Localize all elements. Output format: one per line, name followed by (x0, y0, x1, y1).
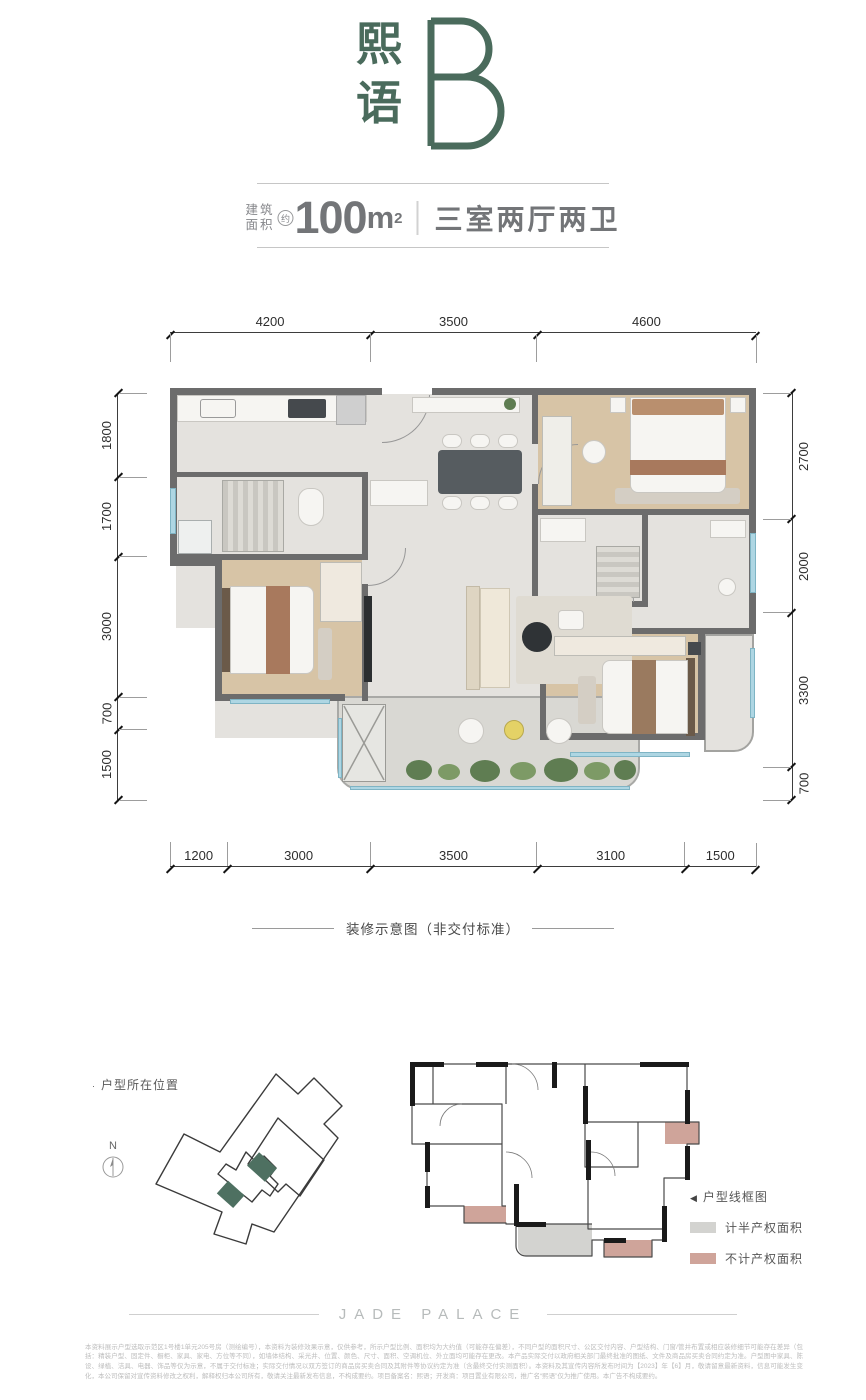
dim-extension (119, 800, 147, 801)
dining-chair (442, 496, 462, 510)
dim-left-5: 1500 (96, 730, 117, 800)
area-superscript: 2 (394, 211, 402, 226)
nightstand (610, 397, 626, 413)
dining-chair (498, 496, 518, 510)
nightstand (688, 642, 701, 655)
dim-left-1: 1800 (96, 393, 117, 477)
bath1-toilet (298, 488, 324, 526)
bedroom2-wardrobe (320, 562, 362, 622)
dim-left-2: 1700 (96, 477, 117, 557)
brand-line-right (547, 1314, 737, 1315)
area-value: 100 (294, 192, 366, 244)
bay-bottom-right (704, 634, 754, 752)
balcony-plant (510, 762, 536, 780)
kitchen-sink (200, 399, 236, 418)
kitchen-stove (288, 399, 326, 418)
bath2-vanity (540, 518, 586, 542)
dim-top-2: 3500 (370, 314, 537, 333)
wireframe-marker: ◀ (690, 1193, 698, 1203)
wall (170, 388, 177, 566)
window (170, 488, 176, 534)
wireframe-label-row: ◀户型线框图 (690, 1188, 803, 1205)
dim-extension (756, 335, 757, 363)
wall (432, 388, 756, 395)
bench (710, 520, 746, 538)
bedroom3-rug (578, 676, 596, 724)
dimension-bottom: 1200 3000 3500 3100 1500 (170, 846, 756, 867)
wall (215, 559, 222, 701)
north-label: N (100, 1140, 126, 1152)
approx-badge: 约 (277, 210, 293, 226)
wall (704, 628, 756, 634)
brand-name: JADE PALACE (339, 1306, 528, 1323)
area-unit: m (367, 200, 395, 236)
layout-text: 三室两厅两卫 (435, 198, 621, 238)
location-bullet: · (92, 1081, 96, 1091)
project-name-char1: 熙 (353, 16, 405, 75)
dining-chair (442, 434, 462, 448)
project-name-char2: 语 (353, 75, 405, 134)
dim-bottom-4: 3100 (537, 846, 685, 867)
site-plan (128, 1066, 348, 1296)
vertical-divider (417, 201, 419, 235)
balcony-plant (470, 760, 500, 782)
dim-extension (763, 800, 791, 801)
dining-table (438, 450, 522, 494)
bath1-shower (222, 480, 284, 552)
fridge (336, 395, 366, 425)
dim-bottom-3: 3500 (370, 846, 537, 867)
tv-wall (364, 596, 372, 682)
unit-letter-b: B (419, 16, 513, 150)
area-label-line1: 建筑 (245, 203, 274, 218)
nightstand (730, 397, 746, 413)
master-pillows (632, 399, 724, 415)
area-label: 建筑 面积 (245, 203, 274, 233)
dim-top-1: 4200 (170, 314, 370, 333)
dining-chair (470, 434, 490, 448)
wall-master-bottom (532, 509, 750, 515)
divider-top (257, 183, 609, 184)
bedroom3-closet (554, 636, 686, 656)
dim-bottom-2: 3000 (227, 846, 370, 867)
dimension-right: 2700 2000 3300 700 (792, 393, 814, 800)
dim-right-1: 2700 (793, 393, 814, 519)
brand-row: JADE PALACE (0, 1306, 866, 1323)
caption-line-left (252, 928, 334, 929)
balcony-plant (438, 764, 460, 780)
dim-right-2: 2000 (793, 519, 814, 613)
floorplan-section: 4200 3500 4600 1800 1700 3000 700 1500 2… (0, 300, 866, 960)
wireframe-plan (402, 1056, 706, 1270)
divider-bottom (257, 247, 609, 248)
dim-top-3: 4600 (537, 314, 756, 333)
balcony-plant (544, 758, 578, 782)
bedroom2-rug (318, 628, 332, 680)
area-label-line2: 面积 (245, 218, 274, 233)
side-table (558, 610, 584, 630)
balcony-chair (546, 718, 572, 744)
sofa-seat (480, 588, 510, 688)
floorplan-render (170, 388, 756, 804)
master-wardrobe (542, 416, 572, 506)
dim-bottom-5: 1500 (685, 846, 756, 867)
area-row: 建筑 面积 约 100 m 2 三室两厅两卫 (245, 192, 620, 244)
caption-line-right (532, 928, 614, 929)
dim-bottom-1: 1200 (170, 846, 227, 867)
balcony-table (504, 720, 524, 740)
disclaimer-text: 本资料展示户型选取示范区1号楼1单元205号房（测绘编号），本资料为装修效果示意… (85, 1343, 803, 1382)
master-chair (582, 440, 606, 464)
dim-left-4: 700 (96, 697, 117, 730)
sofa-back (466, 586, 480, 690)
legend-swatch-half (690, 1222, 716, 1233)
window (570, 752, 690, 757)
dim-right-3: 3300 (793, 613, 814, 767)
project-name: 熙 语 (353, 16, 405, 134)
header-title: 熙 语 B (0, 16, 866, 150)
window (230, 699, 330, 704)
wall-bath1 (362, 472, 368, 560)
balcony-glazing (350, 786, 630, 790)
legend-label-half: 计半产权面积 (725, 1219, 803, 1236)
dim-right-4: 700 (793, 767, 814, 800)
washer (178, 520, 212, 554)
dim-extension (756, 843, 757, 867)
dimension-left: 1800 1700 3000 700 1500 (96, 393, 118, 800)
legend-item-half: 计半产权面积 (690, 1219, 803, 1236)
dimension-top: 4200 3500 4600 (170, 314, 756, 333)
dining-chair (470, 496, 490, 510)
bedroom2-headboard (222, 588, 230, 672)
coffee-table (522, 622, 552, 652)
wall (749, 388, 756, 634)
bedroom2-runner (266, 586, 290, 674)
wall-bath2 (532, 515, 538, 607)
legend-label-excluded: 不计产权面积 (725, 1250, 803, 1267)
legend-block: ◀户型线框图 计半产权面积 不计产权面积 (690, 1188, 803, 1267)
bath1-vanity (370, 480, 428, 506)
bedroom3-runner (632, 660, 656, 734)
poster-page: 熙 语 B 建筑 面积 约 100 m 2 三室两厅两卫 4200 350 (0, 0, 866, 1400)
wall-bath1-bottom (177, 554, 368, 560)
window (750, 648, 755, 718)
wall-bath2-right (642, 515, 648, 607)
dim-left-3: 3000 (96, 557, 117, 697)
bath2-shower (596, 546, 640, 598)
planter-x-mark (342, 704, 386, 782)
stool (718, 578, 736, 596)
window (750, 533, 756, 593)
wall-kitchen (177, 472, 367, 477)
excluded-area-bay-left (464, 1206, 506, 1223)
balcony-plant (584, 762, 610, 780)
balcony-chair (458, 718, 484, 744)
excluded-area-bay-right (665, 1122, 699, 1144)
brand-line-left (129, 1314, 319, 1315)
legend-swatch-excluded (690, 1253, 716, 1264)
dining-chair (498, 434, 518, 448)
caption-text: 装修示意图（非交付标准） (346, 918, 520, 938)
master-bed-runner (630, 460, 726, 475)
half-area-balcony (518, 1224, 592, 1256)
balcony-plant (406, 760, 432, 780)
wall (170, 388, 382, 395)
compass-icon (100, 1154, 126, 1180)
north-compass: N (100, 1140, 126, 1185)
balcony-plant (614, 760, 636, 780)
wireframe-label: 户型线框图 (703, 1190, 768, 1204)
legend-item-excluded: 不计产权面积 (690, 1250, 803, 1267)
plant-decor (504, 398, 516, 410)
wall-master (532, 388, 538, 444)
caption-row: 装修示意图（非交付标准） (0, 918, 866, 938)
